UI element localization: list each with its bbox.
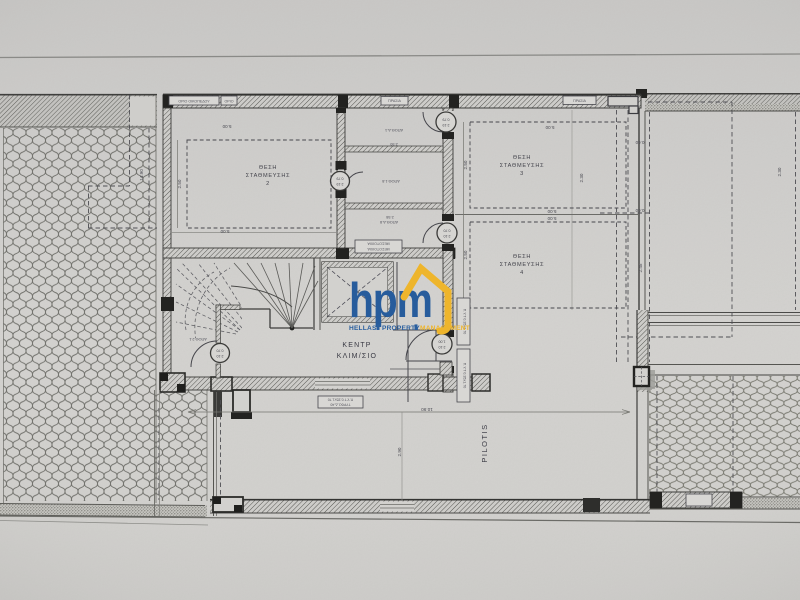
svg-text:3: 3 [520,171,524,177]
svg-text:ΤΥΡ6Ο.Δ.40: ΤΥΡ6Ο.Δ.40 [330,403,350,407]
svg-text:10.90: 10.90 [421,407,433,412]
svg-text:ΟΡΙΟ: ΟΡΙΟ [225,99,234,103]
svg-text:ΚΛΙΜ/ΣΙΟ: ΚΛΙΜ/ΣΙΟ [337,353,377,360]
svg-text:ΑΠΟΘ.Δ.1: ΑΠΟΘ.Δ.1 [385,128,403,132]
svg-text:4: 4 [520,270,524,276]
svg-text:ΟΡΙΟ ΟΙΚΟΠΕΔΟΥ: ΟΡΙΟ ΟΙΚΟΠΕΔΟΥ [178,99,210,103]
svg-text:ΚΕΝΤΡ: ΚΕΝΤΡ [342,342,371,349]
svg-text:ΑΠΟΘ.1.8: ΑΠΟΘ.1.8 [382,179,400,183]
svg-text:5.00: 5.00 [547,209,556,214]
svg-text:ΑΠΟΘ.2.1: ΑΠΟΘ.2.1 [189,337,207,341]
svg-text:ΠΡΑΣΙΑ: ΠΡΑΣΙΑ [573,99,586,103]
svg-text:ΣΤΑΘΜΕΥΣΗΣ: ΣΤΑΘΜΕΥΣΗΣ [500,262,545,268]
svg-text:2.58: 2.58 [386,215,393,219]
svg-text:PILOTIS: PILOTIS [480,423,489,462]
svg-text:ΜΕΣΟΤΟΙΧΙΑ: ΜΕΣΟΤΟΙΧΙΑ [367,242,390,246]
svg-text:2.10: 2.10 [217,354,224,358]
svg-text:2.90: 2.90 [397,447,402,456]
svg-text:0.60: 0.60 [635,208,644,213]
svg-text:ΠΡΑΣΙΑ: ΠΡΑΣΙΑ [388,99,401,103]
svg-text:Π.Υ.Τ 0.35x1.70: Π.Υ.Τ 0.35x1.70 [463,363,467,388]
svg-text:1.00: 1.00 [439,339,446,343]
svg-text:ΘΕΣΗ: ΘΕΣΗ [259,165,277,171]
svg-text:2.50: 2.50 [463,160,468,169]
svg-text:2.19: 2.19 [337,182,344,186]
svg-text:0.70: 0.70 [444,228,451,232]
svg-text:ΜΕΣΟΤΟΙΧΙΑ: ΜΕΣΟΤΟΙΧΙΑ [367,247,390,251]
svg-text:2.10: 2.10 [439,345,446,349]
svg-text:5.00: 5.00 [547,216,556,221]
svg-text:ΣΤΑΘΜΕΥΣΗΣ: ΣΤΑΘΜΕΥΣΗΣ [246,173,291,179]
svg-text:2.10: 2.10 [444,234,451,238]
svg-text:ΘΕΣΗ: ΘΕΣΗ [513,155,531,161]
svg-text:0.79: 0.79 [443,117,450,121]
svg-text:2.19: 2.19 [443,123,450,127]
svg-text:5.00: 5.00 [222,124,231,129]
svg-text:ΣΤΑΘΜΕΥΣΗΣ: ΣΤΑΘΜΕΥΣΗΣ [500,163,545,169]
svg-text:2.30: 2.30 [777,167,782,176]
svg-text:MANAGEMENT: MANAGEMENT [420,325,470,332]
svg-text:0.79: 0.79 [337,176,344,180]
svg-text:2.50: 2.50 [390,142,397,146]
svg-text:2.45: 2.45 [638,263,643,272]
svg-text:hpm: hpm [349,272,432,328]
svg-text:2: 2 [266,181,270,187]
svg-text:ΑΠΟΘ.Δ.8: ΑΠΟΘ.Δ.8 [380,220,398,224]
svg-text:14.90: 14.90 [139,169,144,181]
svg-text:Π.Υ.Τ 0.35x1.70: Π.Υ.Τ 0.35x1.70 [328,398,353,402]
svg-text:2.50: 2.50 [177,179,182,188]
svg-text:ΘΕΣΗ: ΘΕΣΗ [513,254,531,260]
svg-text:2.30: 2.30 [579,173,584,182]
svg-text:5.00: 5.00 [220,229,229,234]
svg-text:2.50: 2.50 [463,250,468,259]
svg-text:HELLAS: HELLAS [349,325,377,332]
svg-text:0.60: 0.60 [635,140,644,145]
svg-text:0.70: 0.70 [217,348,224,352]
svg-text:5.00: 5.00 [545,125,554,130]
